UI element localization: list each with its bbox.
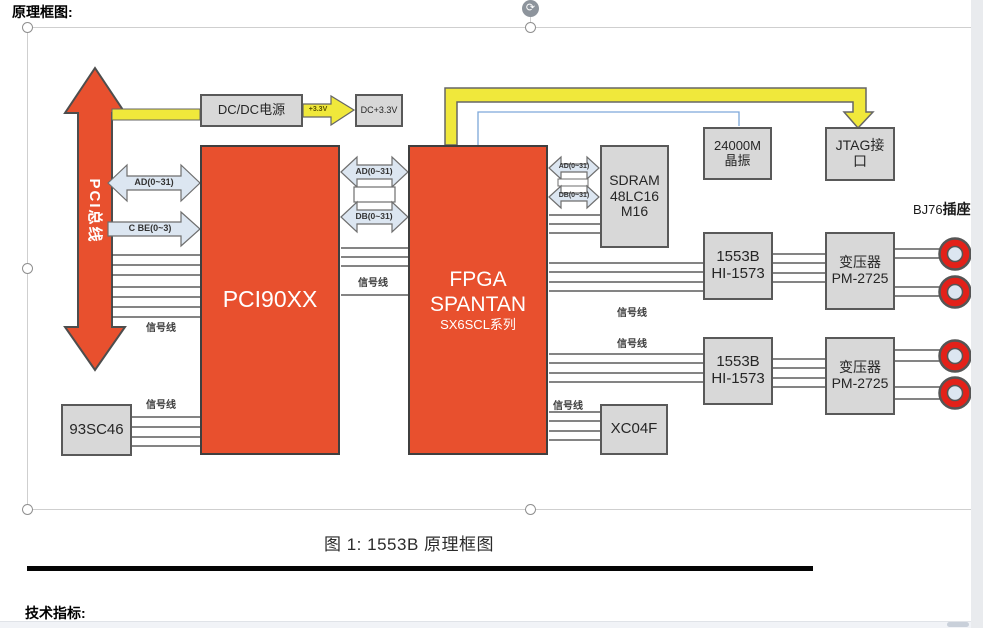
signal-lines-transformer1-connectors	[895, 249, 940, 296]
rotate-handle-icon[interactable]: ⟳	[522, 0, 539, 17]
selection-handle-bottom-mid[interactable]	[525, 504, 536, 515]
connector-label: BJ76插座	[913, 199, 971, 219]
block-transformer-1: 变压器 PM-2725	[825, 232, 895, 310]
block-transformer-2: 变压器 PM-2725	[825, 337, 895, 415]
block-dcdc-power: DC/DC电源	[200, 94, 303, 127]
selection-handle-bottom-left[interactable]	[22, 504, 33, 515]
horizontal-rule	[27, 566, 813, 571]
signal-lines-1553b-1	[549, 263, 704, 291]
block-1553b-1: 1553B HI-1573	[703, 232, 773, 300]
signal-label-6: 信号线	[553, 397, 583, 412]
block-sdram: SDRAM 48LC16 M16	[600, 145, 669, 248]
bus-connector-1	[940, 239, 971, 270]
power-wire-left	[112, 109, 200, 120]
cbe-bus-label: C BE(0~3)	[118, 223, 182, 233]
ad-bus-label-sdram: AD(0~31)	[550, 163, 598, 170]
block-jtag: JTAG接 口	[825, 127, 895, 181]
section-heading-bottom: 技术指标:	[25, 603, 86, 623]
block-1553b-2: 1553B HI-1573	[703, 337, 773, 405]
signal-lines-93sc46	[132, 417, 200, 446]
db-bus-label-mid: DB(0~31)	[348, 211, 400, 221]
bus-connector-3	[940, 341, 971, 372]
selection-handle-top-left[interactable]	[22, 22, 33, 33]
bus-connector-4	[940, 378, 971, 409]
db-bus-label-sdram: DB(0~31)	[550, 192, 598, 199]
block-93sc46: 93SC46	[61, 404, 132, 456]
right-scroll-strip[interactable]	[971, 0, 983, 628]
power-wire-jtag	[445, 88, 873, 145]
bus-joint-sdram	[558, 179, 588, 186]
horizontal-scrollbar[interactable]	[0, 621, 971, 628]
selection-handle-left-mid[interactable]	[22, 263, 33, 274]
signal-lines-transformer2-connectors	[895, 350, 940, 399]
block-fpga: FPGA SPANTAN SX6SCL系列	[408, 145, 548, 455]
selection-border-top	[27, 27, 971, 28]
v33-label: +3.3V	[305, 106, 331, 113]
signal-label-4: 信号线	[617, 304, 647, 319]
signal-lines-pci-left	[112, 255, 200, 317]
block-crystal: 24000M 晶振	[703, 127, 772, 180]
ad-bus-label-mid: AD(0~31)	[348, 166, 400, 176]
signal-label-2: 信号线	[146, 396, 176, 411]
block-pci90xx: PCI90XX	[200, 145, 340, 455]
selection-border-bottom	[27, 509, 971, 510]
block-dc-33v: DC+3.3V	[355, 94, 403, 127]
clock-line	[478, 112, 739, 145]
signal-label-3: 信号线	[358, 274, 388, 289]
signal-lines-xc04f	[549, 412, 600, 440]
signal-lines-1553b2-transformer2	[773, 359, 825, 387]
figure-caption: 图 1: 1553B 原理框图	[324, 530, 494, 555]
block-xc04f: XC04F	[600, 404, 668, 455]
document-page: 原理框图: 技术指标:	[0, 0, 983, 628]
pci-bus-label: PCI总线	[84, 171, 106, 251]
section-heading-top: 原理框图:	[12, 2, 73, 22]
horizontal-scrollbar-thumb[interactable]	[947, 622, 969, 627]
bus-joint-mid	[354, 187, 395, 202]
signal-lines-sdram	[549, 215, 600, 233]
signal-lines-1553b1-transformer1	[773, 254, 825, 282]
ad-bus-label-left: AD(0~31)	[128, 177, 180, 187]
signal-lines-1553b-2	[549, 354, 704, 382]
signal-label-5: 信号线	[617, 335, 647, 350]
bus-connector-2	[940, 277, 971, 308]
selection-handle-top-mid[interactable]	[525, 22, 536, 33]
signal-label-1: 信号线	[146, 319, 176, 334]
